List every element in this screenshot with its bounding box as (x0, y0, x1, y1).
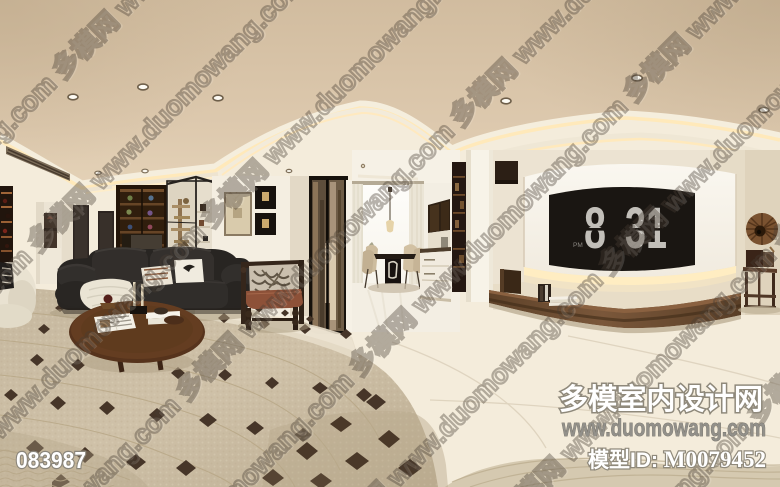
svg-text:PM: PM (573, 242, 583, 249)
svg-text:多模室内设计网: 多模室内设计网 (559, 382, 763, 416)
svg-text:www.duomowang.com: www.duomowang.com (561, 415, 766, 442)
svg-text:模型ID: M0079452: 模型ID: M0079452 (588, 447, 766, 472)
svg-text:083987: 083987 (16, 447, 86, 473)
